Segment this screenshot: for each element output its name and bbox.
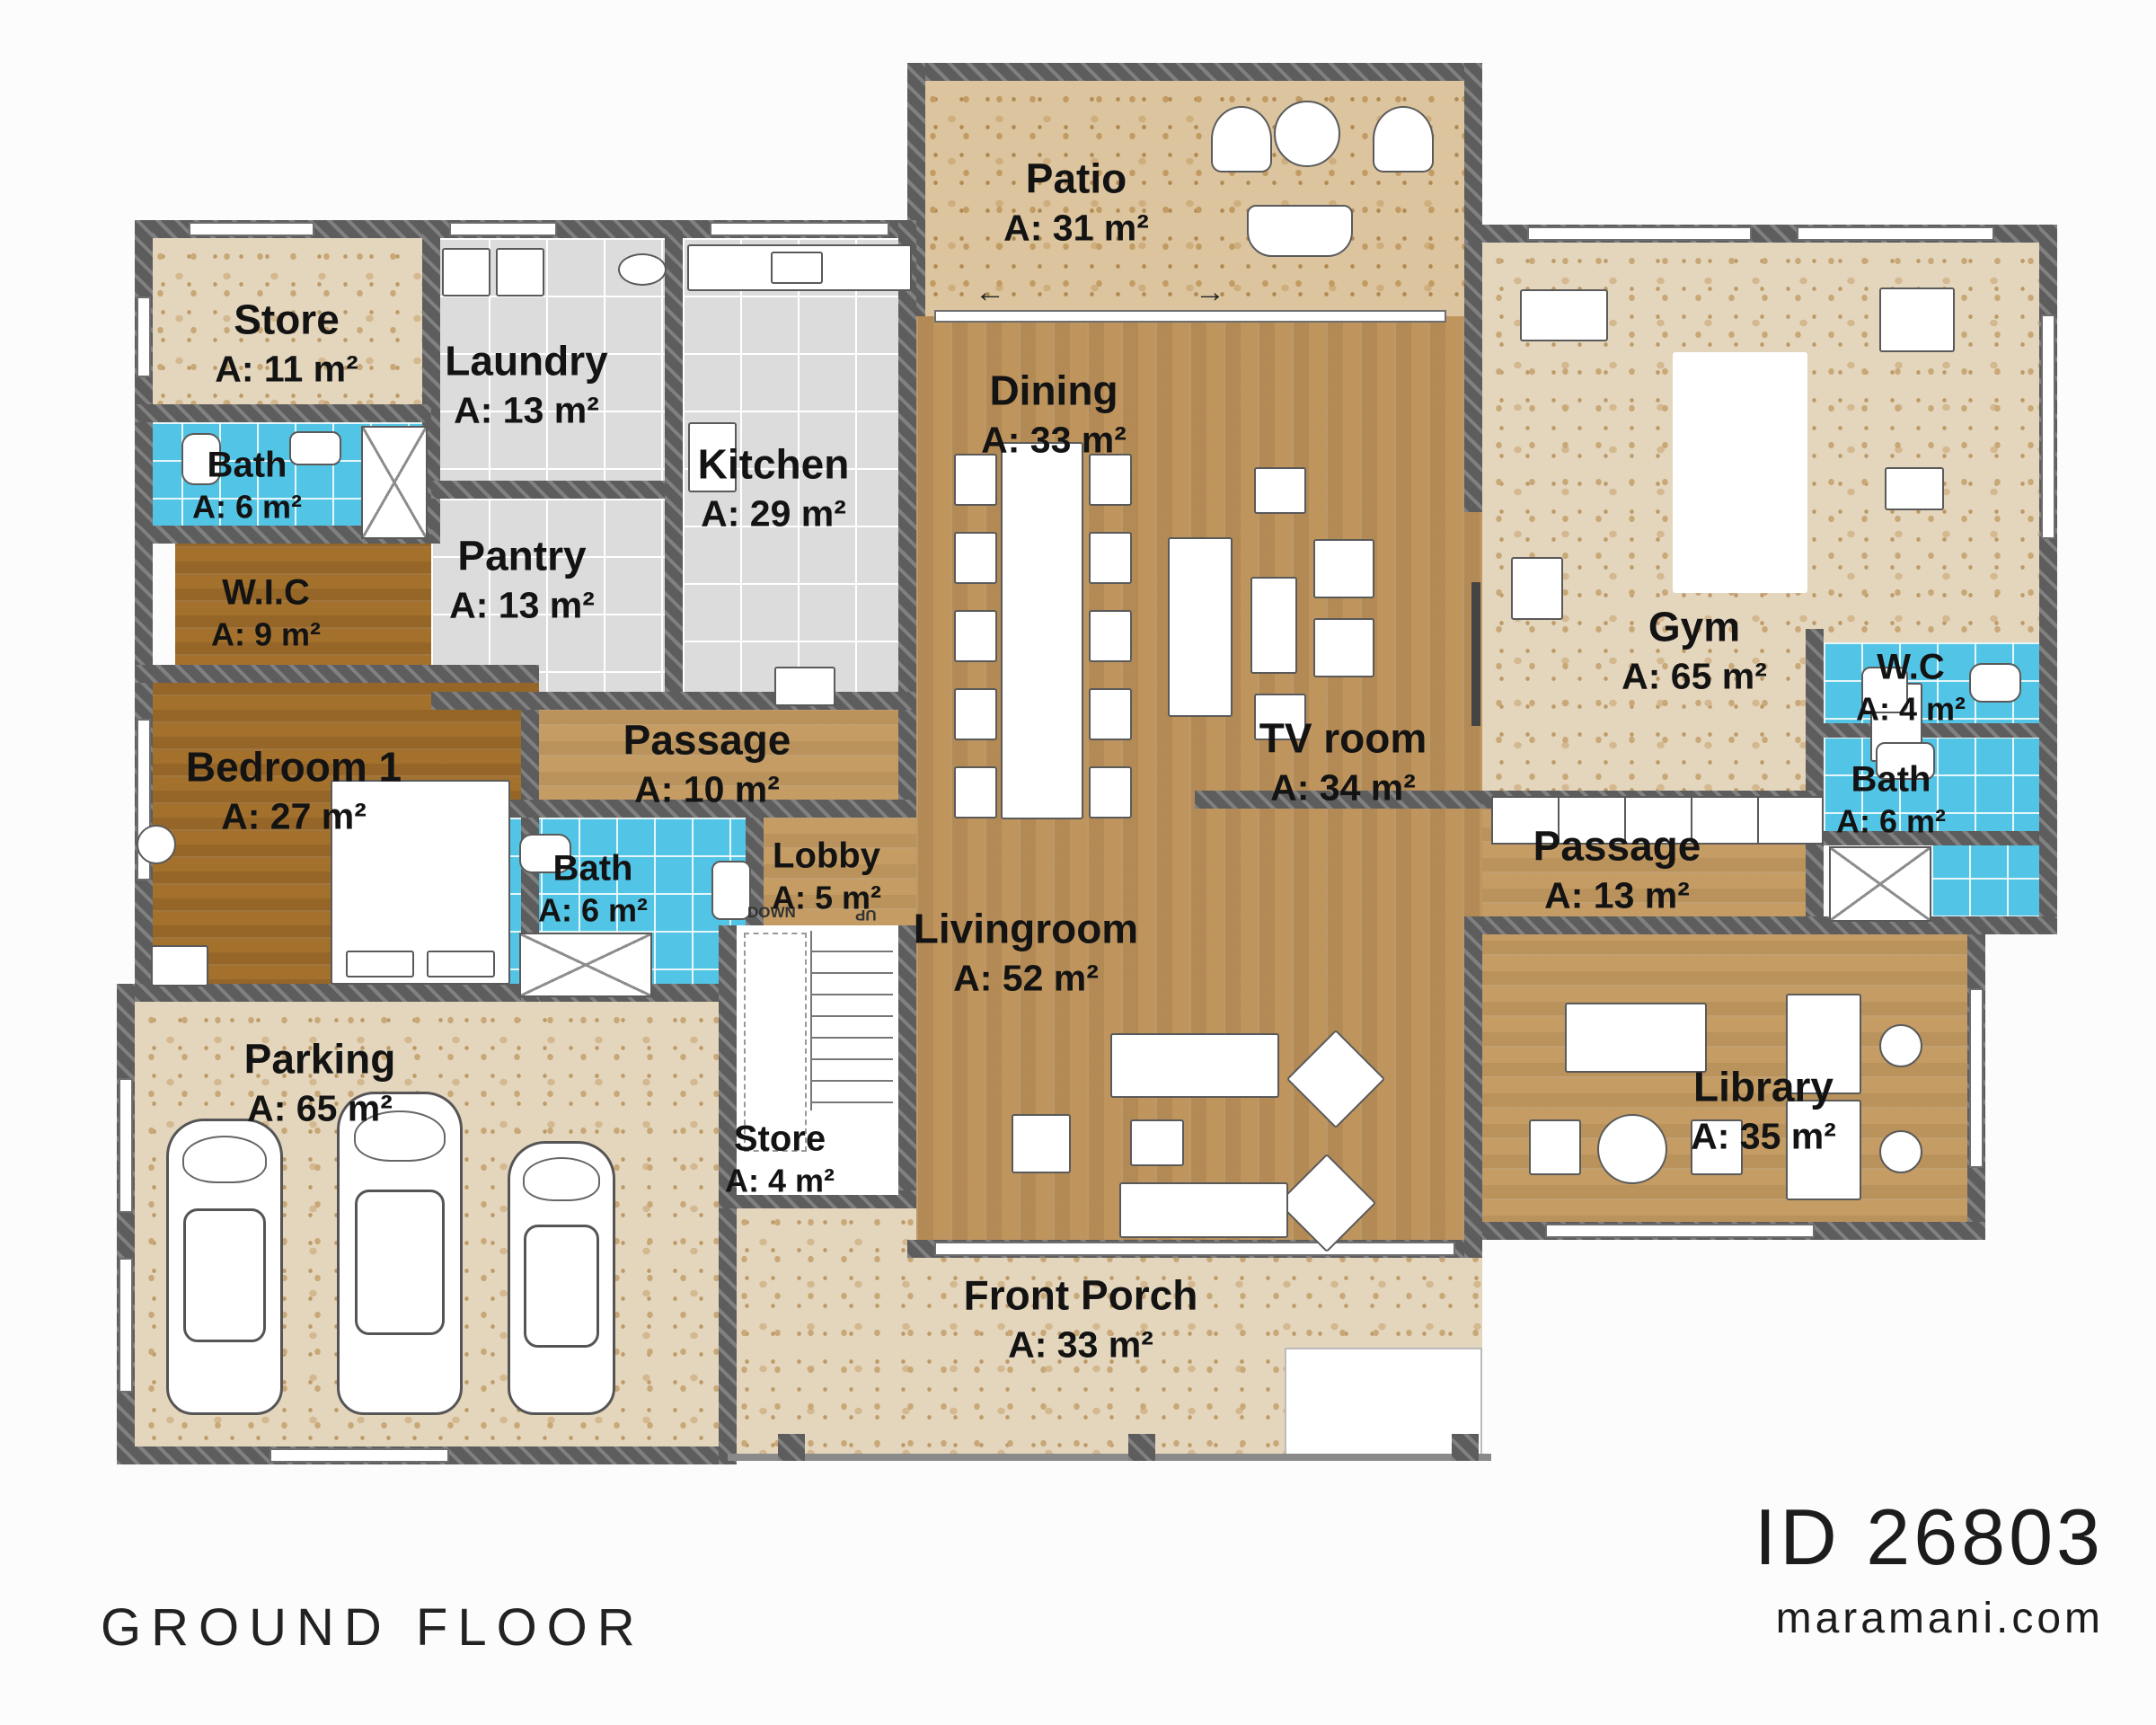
floor-plan: ← → [0, 0, 2156, 1725]
porch-edge [728, 1454, 1491, 1461]
dining-chair [954, 532, 997, 584]
wall [665, 220, 683, 710]
dining-chair [1089, 610, 1132, 662]
dining-chair [1089, 766, 1132, 818]
slide-arrow-icon: ← [975, 275, 1005, 310]
dining-chair [954, 688, 997, 740]
washer [442, 248, 490, 296]
label-bath-mid: BathA: 6 m² [538, 848, 648, 928]
dining-chair [954, 454, 997, 506]
patio-loveseat [1247, 205, 1353, 257]
wall [1464, 243, 1482, 512]
side-table [1012, 1114, 1071, 1173]
label-passage-right: PassageA: 13 m² [1533, 823, 1701, 916]
label-wc-right: W.CA: 4 m² [1856, 647, 1966, 727]
patio-chair [1211, 106, 1272, 172]
window [1797, 226, 1994, 241]
window [137, 296, 151, 377]
porch-pillar [1452, 1434, 1479, 1461]
gym-equipment [1511, 557, 1563, 620]
wall [898, 220, 916, 818]
laundry-sink [618, 253, 667, 286]
desk-chair [1879, 1130, 1922, 1173]
sofa [1119, 1182, 1288, 1238]
dining-table [1001, 442, 1083, 819]
patio-table [1274, 101, 1340, 167]
wall [431, 481, 683, 499]
armchair [1313, 539, 1374, 598]
tv-screen [1471, 582, 1480, 726]
wall [1806, 629, 1824, 930]
toilet [1969, 663, 2021, 703]
window [189, 222, 314, 236]
brand-website: maramani.com [1754, 1594, 2104, 1643]
window [119, 1258, 133, 1393]
window [1527, 226, 1752, 241]
stair-treads [810, 931, 893, 1110]
car [508, 1141, 615, 1415]
window [449, 222, 557, 236]
wall [135, 404, 431, 422]
shower [1829, 846, 1931, 922]
library-chair [1529, 1119, 1581, 1175]
wall [1464, 63, 1482, 243]
wall [1464, 916, 1482, 1258]
gym-equipment [1879, 287, 1955, 352]
wall [431, 692, 916, 710]
ottoman [1254, 467, 1306, 514]
window [269, 1448, 449, 1463]
window [2041, 314, 2055, 539]
slide-arrow-icon: → [1195, 275, 1225, 310]
coffee-table [1250, 577, 1297, 674]
wall [135, 665, 539, 683]
label-tv-room: TV roomA: 34 m² [1259, 715, 1427, 808]
window [1545, 1224, 1815, 1238]
label-bedroom-1: Bedroom 1A: 27 m² [186, 744, 402, 836]
library-table [1597, 1114, 1667, 1184]
label-lobby: LobbyA: 5 m² [772, 836, 881, 916]
label-bath-left: BathA: 6 m² [192, 445, 302, 525]
side-table [1130, 1119, 1184, 1166]
label-patio: PatioA: 31 m² [1003, 155, 1149, 248]
porch-pillar [1128, 1434, 1155, 1461]
floor-title: GROUND FLOOR [101, 1597, 645, 1658]
patio-chair [1373, 106, 1434, 172]
brand-block: ID 26803 maramani.com [1754, 1491, 2104, 1643]
label-gym: GymA: 65 m² [1621, 604, 1767, 696]
sliding-door [934, 1242, 1455, 1256]
sink [711, 861, 751, 920]
stove [774, 667, 835, 706]
dining-chair [1089, 532, 1132, 584]
window [1969, 988, 1984, 1168]
shower [519, 933, 652, 997]
sofa [1110, 1033, 1279, 1098]
label-store-1: StoreA: 11 m² [215, 296, 358, 389]
kitchen-sink [771, 252, 823, 284]
dining-chair [954, 610, 997, 662]
car [337, 1092, 463, 1415]
dining-chair [1089, 688, 1132, 740]
pillow [346, 951, 414, 977]
plan-id: ID 26803 [1754, 1491, 2104, 1583]
label-bath-right: BathA: 6 m² [1836, 759, 1946, 839]
label-laundry: LaundryA: 13 m² [445, 338, 607, 430]
porch-pillar [778, 1434, 805, 1461]
label-pantry: PantryA: 13 m² [449, 533, 595, 625]
label-passage-left: PassageA: 10 m² [623, 717, 791, 809]
library-sofa [1565, 1003, 1707, 1073]
label-store-2: StoreA: 4 m² [725, 1119, 835, 1199]
desk [151, 945, 208, 986]
label-dining: DiningA: 33 m² [981, 367, 1127, 460]
desk-chair [1879, 1024, 1922, 1067]
label-wic: W.I.CA: 9 m² [211, 572, 321, 652]
washer [496, 248, 544, 296]
sliding-door [934, 310, 1446, 323]
pillow [427, 951, 495, 977]
tv-sofa [1168, 537, 1233, 717]
gym-equipment [1885, 467, 1944, 510]
label-front-porch: Front PorchA: 33 m² [964, 1272, 1198, 1365]
wall [907, 63, 1482, 81]
car [166, 1119, 283, 1415]
label-livingroom: LivingroomA: 52 m² [914, 906, 1138, 998]
gym-equipment [1520, 289, 1608, 341]
label-kitchen: KitchenA: 29 m² [698, 441, 850, 534]
gym-mat [1673, 352, 1807, 593]
window [710, 222, 889, 236]
armchair [1313, 618, 1374, 677]
dining-chair [1089, 454, 1132, 506]
shower [361, 426, 428, 539]
window [119, 1078, 133, 1213]
label-parking: ParkingA: 65 m² [244, 1036, 396, 1128]
label-library: LibraryA: 35 m² [1691, 1064, 1836, 1156]
stool [137, 825, 176, 864]
dining-chair [954, 766, 997, 818]
bath-right-floor-ext [1931, 840, 2039, 916]
